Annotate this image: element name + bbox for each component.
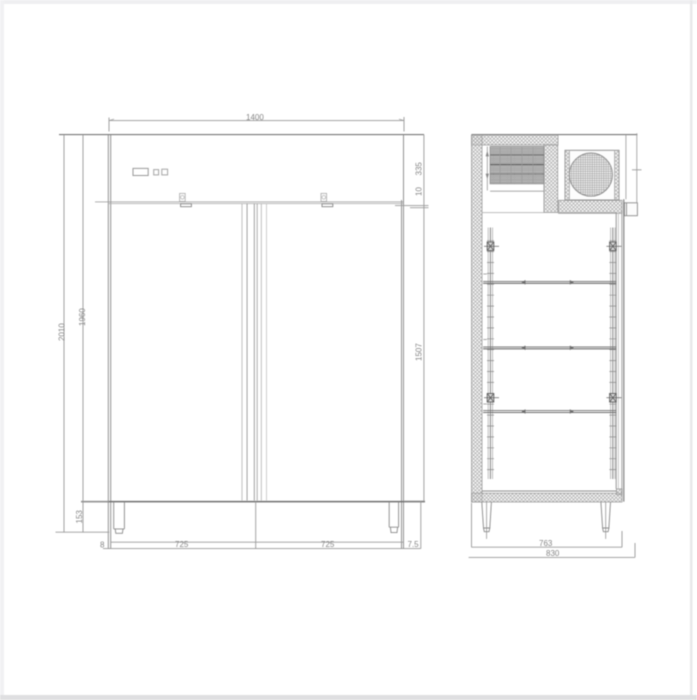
svg-text:153: 153	[75, 510, 84, 524]
svg-text:2010: 2010	[58, 323, 67, 341]
svg-text:725: 725	[175, 540, 189, 549]
svg-text:1960: 1960	[78, 308, 87, 326]
svg-text:8: 8	[100, 541, 105, 550]
svg-text:7.5: 7.5	[408, 540, 420, 549]
svg-text:725: 725	[321, 540, 335, 549]
svg-text:1400: 1400	[246, 113, 264, 122]
svg-text:830: 830	[546, 549, 560, 558]
svg-text:335: 335	[415, 162, 424, 176]
svg-text:1507: 1507	[415, 343, 424, 361]
svg-text:10: 10	[415, 187, 424, 196]
svg-text:763: 763	[539, 539, 553, 548]
